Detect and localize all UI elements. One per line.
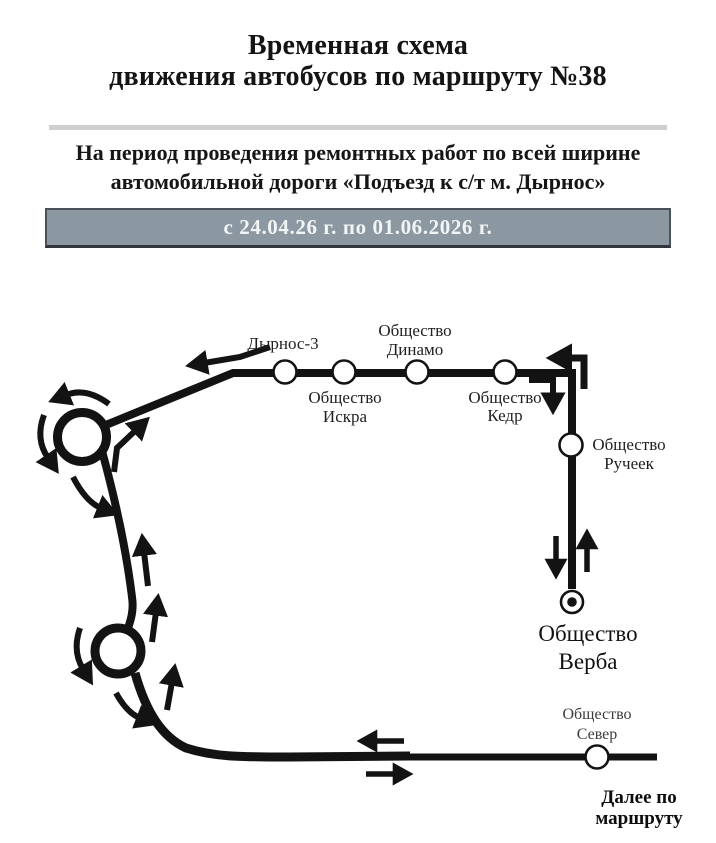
arrow-roundabout-north-left <box>40 415 48 458</box>
terminal-label-verba-1: Общество <box>538 621 637 646</box>
stop-label-sever-1: Общество <box>562 706 631 723</box>
stop-label-rucheek-2: Ручеек <box>604 454 655 473</box>
stop-circle-iskra <box>333 361 356 384</box>
continuation-note-1: Далее по <box>601 787 676 808</box>
stop-label-iskra-2: Искра <box>323 407 368 426</box>
arrow-northeast-exit <box>114 430 136 472</box>
route-west-link <box>102 451 133 631</box>
stop-label-rucheek-1: Общество <box>592 435 665 454</box>
continuation-note-2: маршруту <box>595 808 683 829</box>
stop-circle-rucheek <box>560 434 583 457</box>
arrow-roundabout-north-bottom <box>73 477 101 508</box>
arrow-roundabout-south-left <box>77 628 83 669</box>
route-poster: Временная схема движения автобусов по ма… <box>0 0 716 843</box>
terminal-dot-verba <box>567 597 577 607</box>
stop-circle-sever <box>586 746 609 769</box>
arrow-up-midsegment <box>144 552 148 586</box>
stop-label-dyrnos3: Дырнос-3 <box>247 334 318 353</box>
stop-label-kedr-1: Общество <box>468 388 541 407</box>
stop-label-sever-2: Север <box>577 726 618 743</box>
stop-circle-dyrnos3 <box>274 361 297 384</box>
route-south-curve <box>135 673 410 757</box>
stop-label-kedr-2: Кедр <box>487 406 522 425</box>
stop-label-dinamo-1: Общество <box>378 321 451 340</box>
roundabout-north <box>58 413 107 462</box>
arrow-roundabout-north-top <box>66 392 109 404</box>
stop-label-dinamo-2: Динамо <box>387 340 444 359</box>
roundabout-south <box>95 628 141 674</box>
terminal-label-verba-2: Верба <box>559 649 618 674</box>
stop-circle-dinamo <box>406 361 429 384</box>
stop-label-iskra-1: Общество <box>308 388 381 407</box>
route-diagram: Дырнос-3 Общество Искра Общество Динамо … <box>0 0 716 843</box>
stop-circle-kedr <box>494 361 517 384</box>
arrow-up-roundabout-south-top <box>152 612 156 642</box>
arrow-roundabout-south-bottom <box>116 693 140 718</box>
arrow-up-roundabout-south-exit <box>167 682 172 710</box>
